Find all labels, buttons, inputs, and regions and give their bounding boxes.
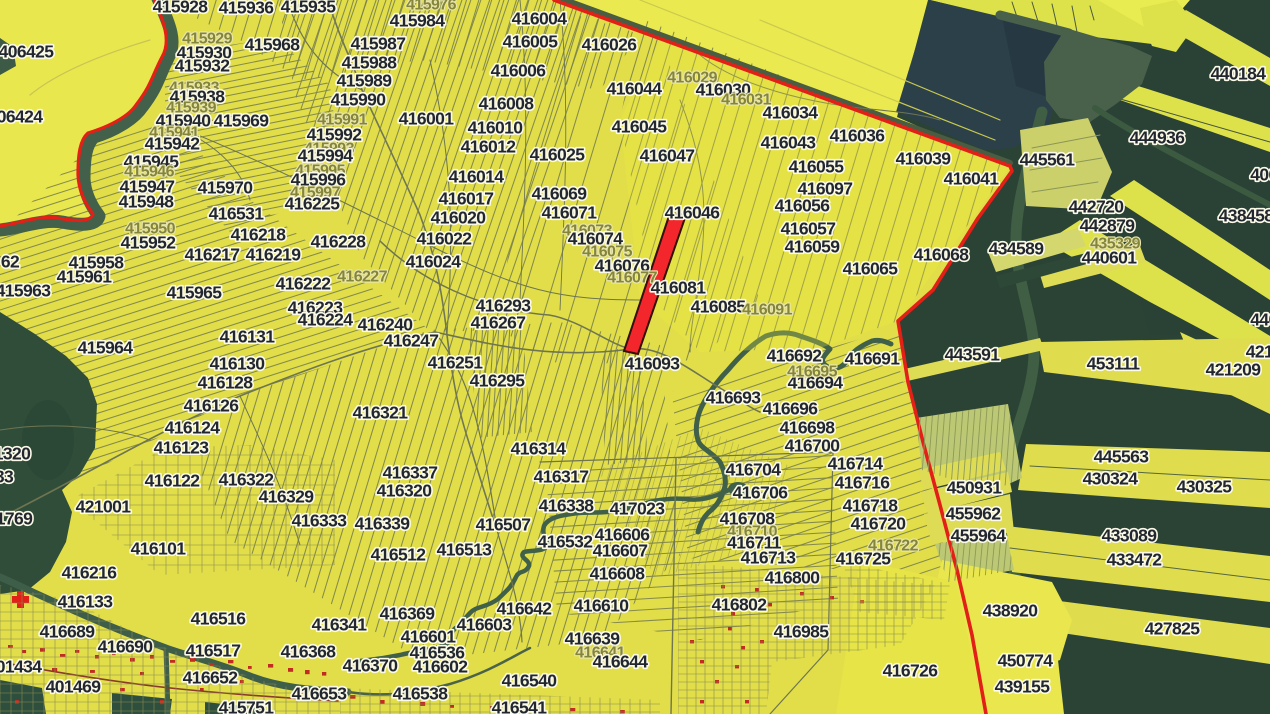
svg-text:417023: 417023 bbox=[610, 499, 666, 519]
svg-text:416126: 416126 bbox=[184, 396, 240, 416]
svg-text:416044: 416044 bbox=[607, 79, 663, 99]
svg-text:416045: 416045 bbox=[612, 117, 668, 137]
svg-text:415964: 415964 bbox=[78, 338, 134, 358]
svg-text:416706: 416706 bbox=[733, 483, 789, 503]
svg-text:415990: 415990 bbox=[331, 90, 387, 110]
svg-text:455962: 455962 bbox=[946, 504, 1002, 524]
svg-text:440: 440 bbox=[1250, 310, 1270, 330]
svg-text:453111: 453111 bbox=[1087, 354, 1141, 374]
svg-text:416333: 416333 bbox=[292, 511, 348, 531]
svg-text:416227: 416227 bbox=[337, 269, 387, 286]
svg-text:416695: 416695 bbox=[787, 364, 837, 381]
svg-text:416014: 416014 bbox=[449, 167, 505, 187]
svg-text:416726: 416726 bbox=[883, 661, 939, 681]
svg-text:416700: 416700 bbox=[785, 436, 841, 456]
svg-text:415965: 415965 bbox=[167, 283, 223, 303]
svg-text:416017: 416017 bbox=[439, 189, 494, 209]
svg-text:421209: 421209 bbox=[1206, 360, 1262, 380]
svg-text:416652: 416652 bbox=[183, 668, 239, 688]
svg-text:445563: 445563 bbox=[1094, 447, 1150, 467]
svg-text:416001: 416001 bbox=[399, 109, 455, 129]
svg-text:416704: 416704 bbox=[726, 460, 782, 480]
svg-text:433472: 433472 bbox=[1107, 550, 1163, 570]
svg-text:445561: 445561 bbox=[1020, 150, 1076, 170]
svg-text:416047: 416047 bbox=[640, 146, 695, 166]
svg-text:416369: 416369 bbox=[380, 604, 436, 624]
svg-text:450774: 450774 bbox=[998, 651, 1054, 671]
svg-text:416608: 416608 bbox=[590, 564, 646, 584]
svg-text:416317: 416317 bbox=[534, 467, 589, 487]
svg-text:416068: 416068 bbox=[914, 245, 970, 265]
svg-text:416531: 416531 bbox=[209, 204, 265, 224]
svg-text:416720: 416720 bbox=[851, 514, 907, 534]
svg-text:416517: 416517 bbox=[186, 641, 241, 661]
svg-text:416320: 416320 bbox=[377, 481, 433, 501]
svg-text:416036: 416036 bbox=[830, 126, 886, 146]
svg-text:416513: 416513 bbox=[437, 540, 493, 560]
svg-text:416691: 416691 bbox=[845, 349, 901, 369]
svg-text:416337: 416337 bbox=[383, 463, 438, 483]
svg-text:416133: 416133 bbox=[58, 592, 114, 612]
svg-text:416610: 416610 bbox=[574, 596, 630, 616]
svg-text:444936: 444936 bbox=[1130, 128, 1186, 148]
svg-text:406425: 406425 bbox=[0, 42, 54, 62]
svg-text:416034: 416034 bbox=[763, 103, 819, 123]
svg-text:416540: 416540 bbox=[502, 671, 558, 691]
svg-text:416006: 416006 bbox=[491, 61, 547, 81]
svg-text:416046: 416046 bbox=[665, 203, 721, 223]
svg-text:416370: 416370 bbox=[343, 656, 399, 676]
svg-text:415963: 415963 bbox=[0, 281, 51, 301]
svg-text:416541: 416541 bbox=[492, 698, 548, 714]
svg-text:416219: 416219 bbox=[246, 245, 302, 265]
svg-text:430324: 430324 bbox=[1083, 469, 1139, 489]
svg-text:416644: 416644 bbox=[593, 652, 649, 672]
svg-text:401434: 401434 bbox=[0, 657, 42, 677]
svg-text:416602: 416602 bbox=[413, 657, 469, 677]
svg-text:416024: 416024 bbox=[406, 252, 462, 272]
svg-text:416368: 416368 bbox=[281, 642, 337, 662]
svg-text:415988: 415988 bbox=[342, 53, 398, 73]
svg-text:415952: 415952 bbox=[121, 233, 177, 253]
svg-text:455964: 455964 bbox=[951, 526, 1007, 546]
svg-text:415961: 415961 bbox=[57, 267, 113, 287]
svg-text:415751: 415751 bbox=[219, 698, 275, 714]
svg-text:427825: 427825 bbox=[1145, 619, 1201, 639]
svg-text:416251: 416251 bbox=[428, 353, 484, 373]
svg-text:434589: 434589 bbox=[989, 239, 1045, 259]
svg-text:416010: 416010 bbox=[468, 118, 524, 138]
svg-text:415989: 415989 bbox=[337, 71, 393, 91]
svg-text:415935: 415935 bbox=[281, 0, 337, 17]
svg-text:416012: 416012 bbox=[461, 137, 517, 157]
svg-text:1320: 1320 bbox=[0, 444, 31, 464]
svg-text:416711: 416711 bbox=[727, 533, 782, 553]
svg-text:416329: 416329 bbox=[259, 487, 315, 507]
svg-text:416057: 416057 bbox=[781, 219, 836, 239]
svg-text:416516: 416516 bbox=[191, 609, 247, 629]
svg-text:416043: 416043 bbox=[761, 133, 817, 153]
svg-text:416718: 416718 bbox=[843, 496, 899, 516]
svg-text:406424: 406424 bbox=[0, 107, 43, 127]
svg-text:401469: 401469 bbox=[46, 677, 102, 697]
svg-text:416228: 416228 bbox=[311, 232, 367, 252]
svg-text:416716: 416716 bbox=[835, 473, 891, 493]
svg-text:416025: 416025 bbox=[530, 145, 586, 165]
svg-text:439155: 439155 bbox=[995, 677, 1051, 697]
svg-text:406: 406 bbox=[1250, 165, 1270, 185]
svg-text:416091: 416091 bbox=[742, 302, 792, 319]
svg-text:415987: 415987 bbox=[351, 34, 406, 54]
svg-text:416532: 416532 bbox=[538, 532, 594, 552]
svg-text:438920: 438920 bbox=[983, 601, 1039, 621]
svg-text:416696: 416696 bbox=[763, 399, 819, 419]
svg-text:416071: 416071 bbox=[542, 203, 598, 223]
svg-text:416224: 416224 bbox=[298, 310, 354, 330]
svg-text:416128: 416128 bbox=[198, 373, 254, 393]
svg-text:416216: 416216 bbox=[62, 563, 118, 583]
svg-text:450931: 450931 bbox=[947, 478, 1003, 498]
svg-text:416059: 416059 bbox=[785, 237, 841, 257]
svg-text:4212: 4212 bbox=[1246, 342, 1270, 362]
svg-text:416653: 416653 bbox=[292, 684, 348, 704]
svg-text:416022: 416022 bbox=[417, 229, 473, 249]
svg-text:416123: 416123 bbox=[154, 438, 210, 458]
svg-text:416081: 416081 bbox=[651, 278, 707, 298]
svg-text:416338: 416338 bbox=[539, 496, 595, 516]
svg-text:416341: 416341 bbox=[312, 615, 368, 635]
svg-text:415948: 415948 bbox=[119, 192, 175, 212]
svg-text:416722: 416722 bbox=[868, 538, 918, 555]
svg-text:443591: 443591 bbox=[945, 345, 1001, 365]
svg-text:416124: 416124 bbox=[165, 418, 221, 438]
svg-text:416692: 416692 bbox=[767, 346, 823, 366]
svg-text:416267: 416267 bbox=[471, 313, 526, 333]
svg-text:416247: 416247 bbox=[384, 331, 439, 351]
svg-text:416693: 416693 bbox=[706, 388, 762, 408]
svg-text:415969: 415969 bbox=[214, 111, 270, 131]
svg-text:416314: 416314 bbox=[511, 439, 567, 459]
svg-text:416130: 416130 bbox=[210, 354, 266, 374]
svg-text:416800: 416800 bbox=[765, 568, 821, 588]
svg-text:416985: 416985 bbox=[774, 622, 830, 642]
svg-text:421001: 421001 bbox=[76, 497, 132, 517]
svg-text:416101: 416101 bbox=[131, 539, 187, 559]
svg-text:33: 33 bbox=[0, 467, 14, 487]
svg-text:416802: 416802 bbox=[712, 595, 768, 615]
svg-text:416295: 416295 bbox=[470, 371, 526, 391]
svg-text:415932: 415932 bbox=[175, 56, 231, 76]
svg-text:416217: 416217 bbox=[185, 245, 240, 265]
svg-text:416642: 416642 bbox=[497, 599, 553, 619]
svg-text:416507: 416507 bbox=[476, 515, 531, 535]
svg-text:416690: 416690 bbox=[98, 637, 154, 657]
svg-text:416005: 416005 bbox=[503, 32, 559, 52]
svg-text:442720: 442720 bbox=[1069, 197, 1125, 217]
svg-text:442879: 442879 bbox=[1080, 216, 1136, 236]
svg-text:415984: 415984 bbox=[390, 11, 446, 31]
svg-text:416689: 416689 bbox=[40, 622, 96, 642]
svg-text:416020: 416020 bbox=[431, 208, 487, 228]
svg-text:416008: 416008 bbox=[479, 94, 535, 114]
svg-text:416093: 416093 bbox=[625, 354, 681, 374]
svg-text:416056: 416056 bbox=[775, 196, 831, 216]
svg-text:416222: 416222 bbox=[276, 274, 332, 294]
svg-text:416026: 416026 bbox=[582, 35, 638, 55]
svg-text:416004: 416004 bbox=[512, 9, 568, 29]
svg-text:416055: 416055 bbox=[789, 157, 845, 177]
svg-text:415968: 415968 bbox=[245, 35, 301, 55]
svg-text:440184: 440184 bbox=[1211, 64, 1267, 84]
svg-text:415942: 415942 bbox=[145, 134, 201, 154]
svg-text:1769: 1769 bbox=[0, 509, 33, 529]
svg-text:416512: 416512 bbox=[371, 545, 427, 565]
svg-text:416698: 416698 bbox=[780, 418, 836, 438]
svg-text:433089: 433089 bbox=[1102, 526, 1158, 546]
svg-text:416607: 416607 bbox=[593, 541, 648, 561]
svg-text:440601: 440601 bbox=[1082, 248, 1138, 268]
svg-text:416714: 416714 bbox=[828, 454, 884, 474]
svg-text:416069: 416069 bbox=[532, 184, 588, 204]
svg-text:416538: 416538 bbox=[393, 684, 449, 704]
svg-text:416039: 416039 bbox=[896, 149, 952, 169]
svg-text:415970: 415970 bbox=[198, 178, 254, 198]
svg-text:416131: 416131 bbox=[220, 327, 276, 347]
svg-text:416085: 416085 bbox=[691, 297, 747, 317]
svg-text:415936: 415936 bbox=[219, 0, 275, 18]
svg-text:415928: 415928 bbox=[153, 0, 209, 17]
svg-text:416041: 416041 bbox=[944, 169, 1000, 189]
svg-text:416065: 416065 bbox=[843, 259, 899, 279]
svg-text:416225: 416225 bbox=[285, 194, 341, 214]
svg-text:416218: 416218 bbox=[231, 225, 287, 245]
svg-text:62: 62 bbox=[1, 252, 20, 272]
svg-text:416122: 416122 bbox=[145, 471, 201, 491]
svg-text:416339: 416339 bbox=[355, 514, 411, 534]
svg-text:438458: 438458 bbox=[1219, 206, 1270, 226]
svg-text:430325: 430325 bbox=[1177, 477, 1233, 497]
svg-text:416321: 416321 bbox=[353, 403, 409, 423]
